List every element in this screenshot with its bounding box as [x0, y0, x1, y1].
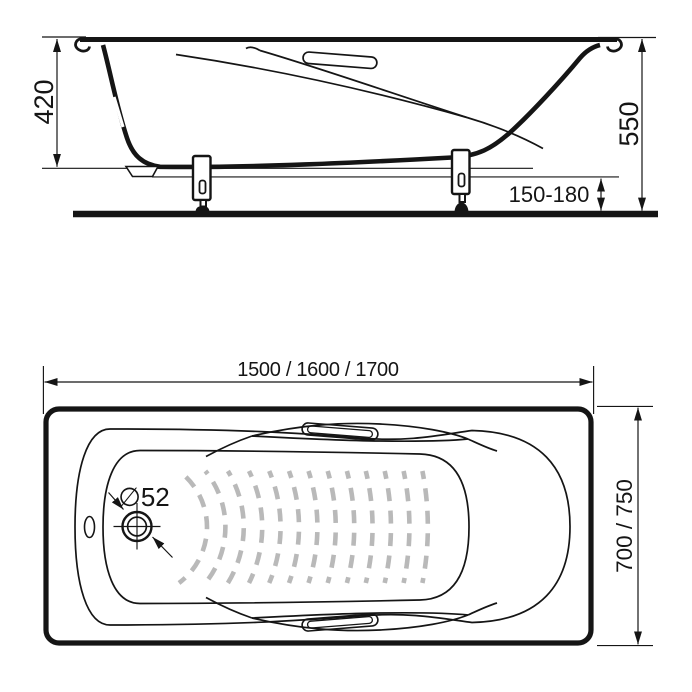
dimension-label-depth: 420	[29, 79, 59, 124]
leg-stem	[201, 200, 207, 207]
grip-curve	[468, 439, 497, 451]
grip-curve	[206, 598, 252, 619]
interior-contour-tip	[246, 47, 260, 50]
dimension-width: 700 / 750	[597, 406, 653, 645]
leg-front	[193, 156, 211, 213]
interior-contour-tail	[467, 118, 543, 149]
leg-bracket-slot	[200, 181, 206, 194]
drain-diameter-label: ∅52	[118, 482, 170, 512]
dimension-label-height: 550	[614, 101, 644, 146]
bathtub-technical-drawing: 420 550 150-180	[0, 0, 692, 692]
drain-leader-lower	[153, 537, 173, 558]
drain-callout: ∅52	[109, 482, 173, 558]
dimension-label-length: 1500 / 1600 / 1700	[237, 359, 399, 381]
leg-rear	[452, 150, 470, 213]
overflow-hole	[85, 517, 95, 538]
rim-handle-slot	[303, 52, 378, 69]
drain-sump-pocket	[126, 167, 158, 177]
leg-bracket	[452, 150, 470, 194]
dimension-leg-height-150-180: 150-180	[509, 179, 601, 211]
dimension-label-leg-height: 150-180	[509, 182, 590, 207]
anti-slip-pattern	[179, 471, 428, 583]
dimension-label-width: 700 / 750	[612, 479, 637, 573]
leg-bracket-slot	[459, 174, 465, 187]
leg-stem	[460, 194, 466, 202]
side-view-tub-outline	[76, 39, 622, 177]
drawing-canvas: 420 550 150-180	[0, 0, 692, 692]
dimension-depth-420: 420	[29, 39, 59, 167]
dimension-length: 1500 / 1600 / 1700	[43, 359, 593, 414]
top-view: ∅52 1500 / 1600 / 1700 700 / 750	[43, 359, 653, 646]
grip-curve	[206, 436, 252, 457]
grip-curve	[468, 603, 497, 615]
dimension-height-550: 550	[614, 39, 644, 211]
side-view: 420 550 150-180	[29, 37, 658, 214]
